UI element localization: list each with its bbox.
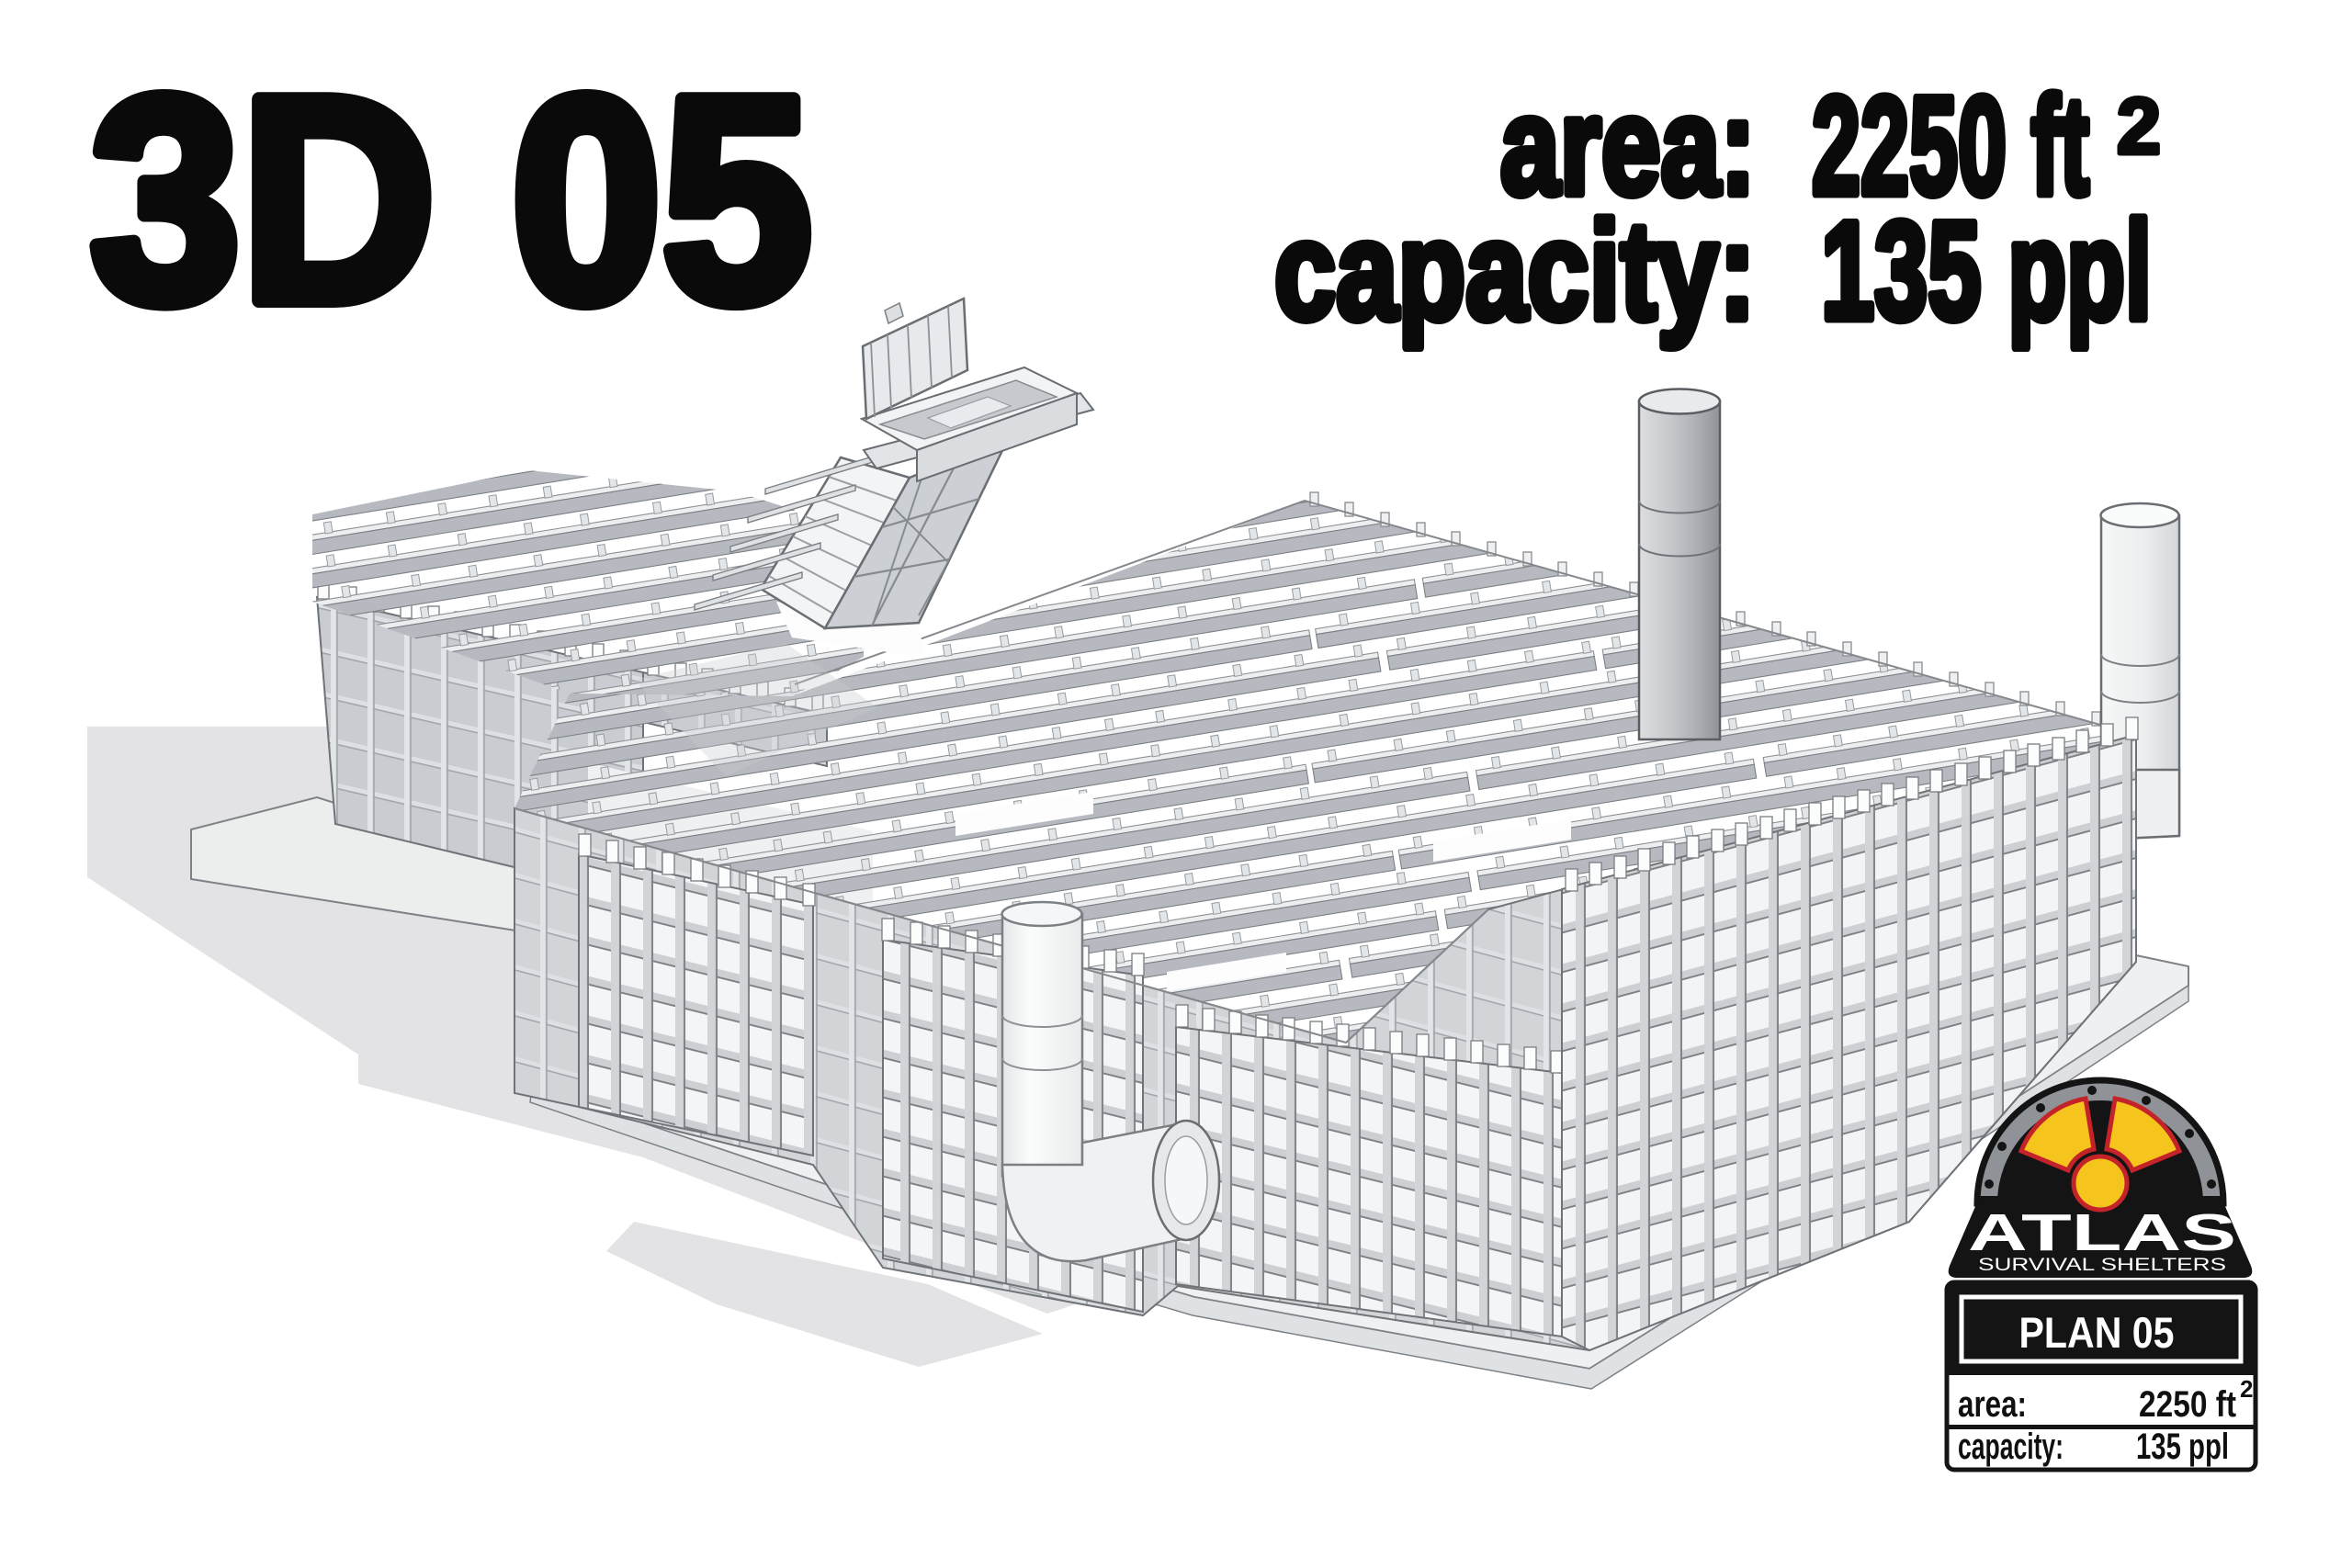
svg-text:135 ppl: 135 ppl [2136,1427,2229,1467]
svg-text:PLAN 05: PLAN 05 [2019,1308,2175,1357]
svg-text:area:: area: [1958,1384,2027,1425]
svg-text:135 ppl: 135 ppl [1821,193,2152,349]
svg-text:ATLAS: ATLAS [1968,1203,2236,1262]
svg-text:3D 05: 3D 05 [90,37,812,363]
svg-text:2: 2 [2117,83,2161,171]
svg-text:capacity:: capacity: [1958,1427,2064,1467]
svg-text:2250 ft: 2250 ft [2139,1384,2236,1425]
svg-text:2: 2 [2240,1375,2253,1403]
svg-text:capacity:: capacity: [1274,193,1756,349]
svg-text:SURVIVAL SHELTERS: SURVIVAL SHELTERS [1978,1256,2226,1275]
